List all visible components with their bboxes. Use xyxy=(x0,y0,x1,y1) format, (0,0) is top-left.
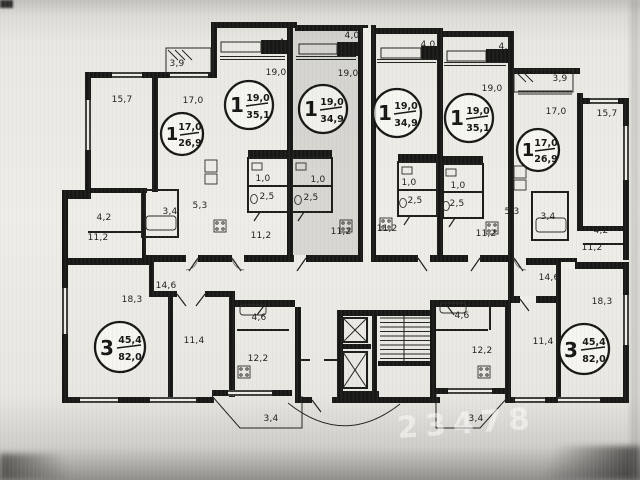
apartment-badge: 1 19,0 35,1 xyxy=(225,81,273,129)
area-label: 3,4 xyxy=(541,212,556,222)
area-label: 11,4 xyxy=(533,337,554,347)
area-label: 12,2 xyxy=(248,354,269,364)
living-area: 45,4 xyxy=(118,335,142,346)
total-area: 35,1 xyxy=(246,110,269,121)
area-label: 4,6 xyxy=(499,42,514,52)
highlighted-apartment-area xyxy=(293,26,358,255)
area-label: 11,2 xyxy=(331,227,352,237)
watermark: 23478 xyxy=(396,401,537,446)
area-label: 4,6 xyxy=(455,311,470,321)
area-label: 14,6 xyxy=(539,273,560,283)
area-label: 4,2 xyxy=(594,226,609,236)
area-label: 2,5 xyxy=(408,196,423,206)
living-area: 17,0 xyxy=(178,122,202,133)
living-area: 19,0 xyxy=(320,97,344,108)
area-label: 19,0 xyxy=(338,69,359,79)
apartment-badge: 1 19,0 35,1 xyxy=(445,94,493,142)
photo-shadow-right-edge xyxy=(630,0,640,480)
area-label: 19,0 xyxy=(482,84,503,94)
apartment-type: 1 xyxy=(304,97,318,121)
area-label: 1,0 xyxy=(451,181,466,191)
total-area: 26,9 xyxy=(534,154,557,165)
area-label: 2,5 xyxy=(450,199,465,209)
area-label: 11,2 xyxy=(251,231,272,241)
area-label: 3,9 xyxy=(553,74,568,84)
area-label: 2,5 xyxy=(304,193,319,203)
apartment-badge: 1 19,0 34,9 xyxy=(373,89,421,137)
apartment-badge: 1 17,0 26,9 xyxy=(161,113,203,155)
area-label: 11,2 xyxy=(476,229,497,239)
total-area: 26,9 xyxy=(178,138,201,149)
area-label: 5,3 xyxy=(505,207,520,217)
apartment-type: 1 xyxy=(450,106,464,130)
apartment-badge: 1 17,0 26,9 xyxy=(517,129,559,171)
area-label: 18,3 xyxy=(122,295,143,305)
total-area: 35,1 xyxy=(466,123,489,134)
apartment-badge: 3 45,4 82,0 xyxy=(95,322,145,372)
living-area: 19,0 xyxy=(246,93,270,104)
area-label: 11,2 xyxy=(88,233,109,243)
apartment-type: 3 xyxy=(100,336,114,360)
area-label: 17,0 xyxy=(183,96,204,106)
area-label: 11,2 xyxy=(377,224,398,234)
area-label: 5,3 xyxy=(193,201,208,211)
living-area: 45,4 xyxy=(582,337,606,348)
photo-shadow-bottom-left xyxy=(0,454,95,480)
area-label: 3,4 xyxy=(264,414,279,424)
area-label: 4,6 xyxy=(279,38,294,48)
apartment-type: 1 xyxy=(378,101,392,125)
area-label: 3,9 xyxy=(170,59,185,69)
area-label: 12,2 xyxy=(472,346,493,356)
area-label: 2,5 xyxy=(260,192,275,202)
staircase xyxy=(380,316,430,361)
area-label: 14,6 xyxy=(156,281,177,291)
total-area: 34,9 xyxy=(320,114,343,125)
area-label: 17,0 xyxy=(546,107,567,117)
area-label: 15,7 xyxy=(112,95,133,105)
floorplan-drawing: 3,9 4,6 4,0 4,0 4,6 3,9 19,0 19,0 19,0 1… xyxy=(0,0,640,480)
area-label: 3,4 xyxy=(163,207,178,217)
living-area: 17,0 xyxy=(534,138,558,149)
photo-shadow-bottom-right xyxy=(500,446,640,480)
area-label: 4,2 xyxy=(97,213,112,223)
apartment-type: 1 xyxy=(522,140,535,161)
area-label: 4,0 xyxy=(345,31,360,41)
floorplan-photo: 3,9 4,6 4,0 4,0 4,6 3,9 19,0 19,0 19,0 1… xyxy=(0,0,640,480)
apartment-type: 1 xyxy=(230,93,244,117)
total-area: 82,0 xyxy=(582,354,606,365)
living-area: 19,0 xyxy=(466,106,490,117)
apartment-badge: 3 45,4 82,0 xyxy=(559,324,609,374)
apartment-type: 3 xyxy=(564,338,578,362)
area-label: 18,3 xyxy=(592,297,613,307)
area-label: 15,7 xyxy=(597,109,618,119)
apartment-type: 1 xyxy=(166,124,179,145)
total-area: 82,0 xyxy=(118,352,142,363)
area-label: 1,0 xyxy=(256,174,271,184)
area-label: 11,2 xyxy=(582,243,603,253)
living-area: 19,0 xyxy=(394,101,418,112)
area-label: 1,0 xyxy=(402,178,417,188)
area-label: 19,0 xyxy=(266,68,287,78)
apartment-badge: 1 19,0 34,9 xyxy=(299,85,347,133)
area-label: 4,6 xyxy=(252,313,267,323)
total-area: 34,9 xyxy=(394,118,417,129)
area-label: 1,0 xyxy=(311,175,326,185)
area-label: 4,0 xyxy=(421,40,436,50)
area-label: 11,4 xyxy=(184,336,205,346)
